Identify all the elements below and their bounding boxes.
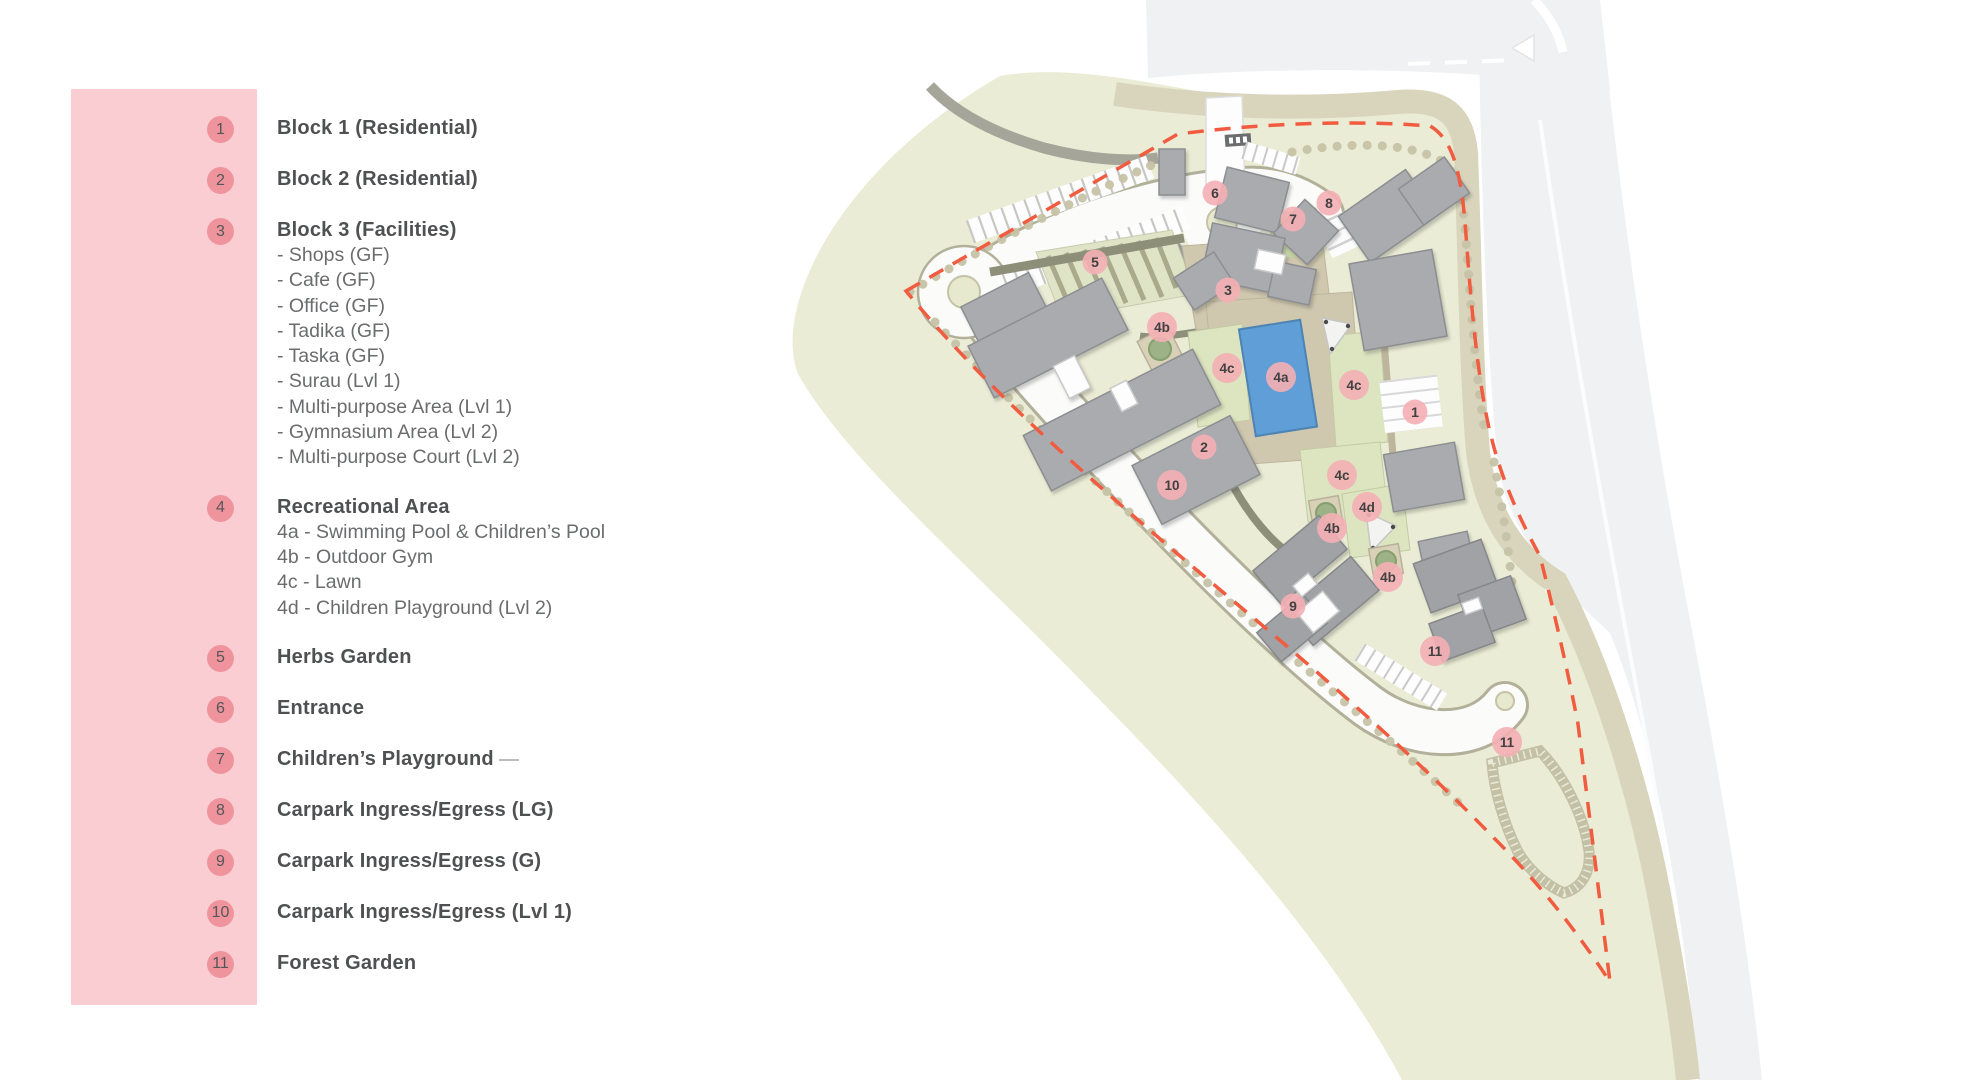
svg-text:11: 11 bbox=[1428, 644, 1443, 659]
svg-text:4b: 4b bbox=[1324, 521, 1340, 536]
map-marker-8: 8 bbox=[1317, 191, 1342, 216]
svg-text:11: 11 bbox=[1500, 735, 1515, 750]
svg-text:7: 7 bbox=[1289, 211, 1297, 227]
map-marker-11: 11 bbox=[1492, 727, 1522, 757]
cul-de-sac-island bbox=[1496, 692, 1514, 710]
svg-text:4b: 4b bbox=[1380, 570, 1396, 585]
map-marker-1: 1 bbox=[1403, 400, 1428, 425]
map-marker-6: 6 bbox=[1203, 181, 1228, 206]
svg-text:4b: 4b bbox=[1154, 320, 1170, 335]
map-marker-4d: 4d bbox=[1352, 492, 1382, 522]
svg-text:6: 6 bbox=[1211, 185, 1219, 201]
svg-text:10: 10 bbox=[1164, 478, 1179, 493]
map-marker-2: 2 bbox=[1192, 435, 1217, 460]
map-marker-3: 3 bbox=[1216, 278, 1241, 303]
map-marker-4b: 4b bbox=[1317, 513, 1347, 543]
svg-text:2: 2 bbox=[1200, 439, 1208, 455]
svg-text:9: 9 bbox=[1289, 598, 1297, 614]
map-marker-4c: 4c bbox=[1339, 370, 1369, 400]
map-marker-10: 10 bbox=[1157, 470, 1187, 500]
map-marker-5: 5 bbox=[1083, 250, 1108, 275]
map-marker-4a: 4a bbox=[1266, 362, 1296, 392]
map-marker-9: 9 bbox=[1281, 594, 1306, 619]
svg-text:4c: 4c bbox=[1219, 361, 1235, 376]
map-marker-4b: 4b bbox=[1147, 312, 1177, 342]
svg-text:4a: 4a bbox=[1273, 370, 1289, 385]
svg-text:4d: 4d bbox=[1359, 500, 1375, 515]
map-marker-4b: 4b bbox=[1373, 562, 1403, 592]
svg-text:1: 1 bbox=[1411, 404, 1419, 420]
svg-text:8: 8 bbox=[1325, 195, 1333, 211]
map-marker-4c: 4c bbox=[1327, 460, 1357, 490]
svg-text:4c: 4c bbox=[1346, 378, 1362, 393]
svg-text:3: 3 bbox=[1224, 282, 1232, 298]
map-marker-4c: 4c bbox=[1212, 353, 1242, 383]
svg-text:4c: 4c bbox=[1334, 468, 1350, 483]
svg-text:5: 5 bbox=[1091, 254, 1099, 270]
map-marker-7: 7 bbox=[1281, 207, 1306, 232]
map-marker-11: 11 bbox=[1420, 636, 1450, 666]
site-plan: 687534b4c4a4c124c104d4b4b91111 bbox=[0, 0, 1980, 1080]
